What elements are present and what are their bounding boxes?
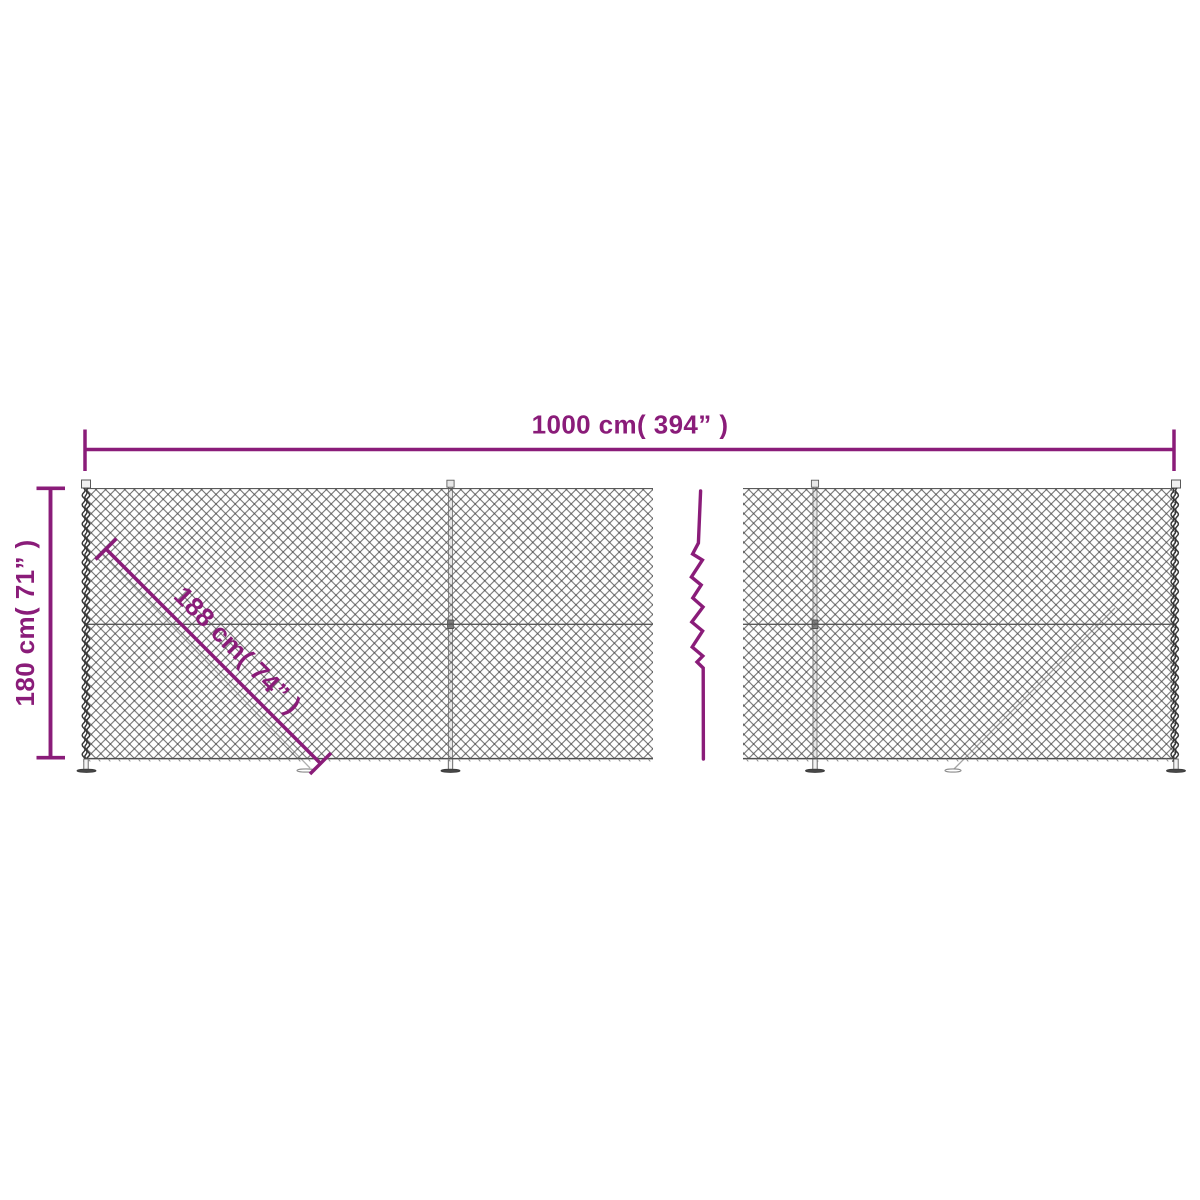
svg-text:1000 cm( 394” ): 1000 cm( 394” ) [532, 410, 729, 440]
svg-text:180 cm( 71” ): 180 cm( 71” ) [10, 539, 40, 706]
